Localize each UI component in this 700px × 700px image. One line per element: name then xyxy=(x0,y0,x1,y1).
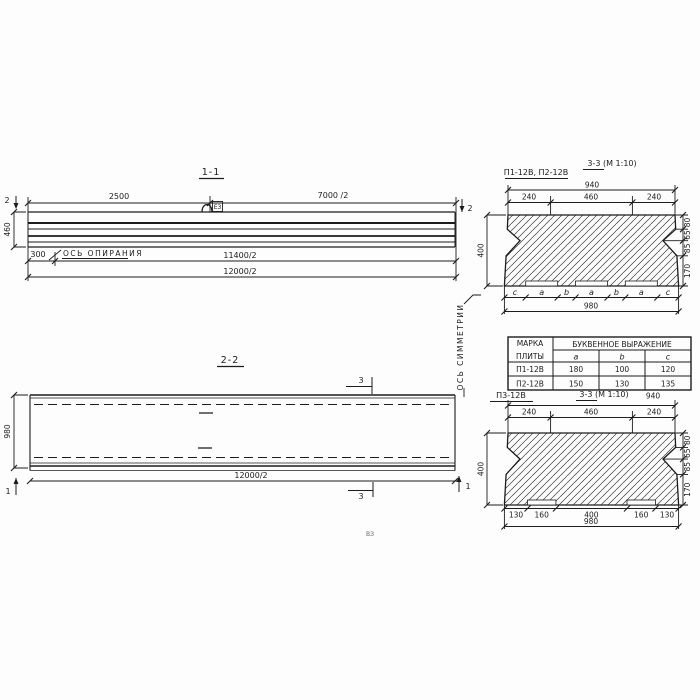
dim-11400: 11400/2 xyxy=(223,251,256,260)
section-marker-2-left: 2 xyxy=(4,196,18,209)
section-2-2-title: 2-2 xyxy=(221,355,240,366)
section-marker-1-right: 1 xyxy=(457,476,471,492)
dim-300: 300 xyxy=(30,250,45,259)
svg-text:130: 130 xyxy=(660,511,675,520)
svg-text:П2-12В: П2-12В xyxy=(516,380,544,389)
svg-text:12000/2: 12000/2 xyxy=(234,471,267,480)
svg-text:П1-12В: П1-12В xyxy=(516,365,544,374)
dim-12000: 12000/2 xyxy=(223,267,256,276)
s33a-label: П1-12В, П2-12В xyxy=(504,168,568,177)
svg-text:65: 65 xyxy=(683,448,692,458)
svg-text:980: 980 xyxy=(3,424,12,439)
section-marker-3-bottom: 3 xyxy=(348,482,373,501)
svg-text:120: 120 xyxy=(661,365,676,374)
svg-text:c: c xyxy=(513,288,518,297)
dim-7000: 7000 /2 xyxy=(318,191,349,200)
section-2-2: 2-2 980 12000/2 3 xyxy=(3,355,471,501)
svg-text:980: 980 xyxy=(584,302,599,311)
dim-2500: 2500 xyxy=(109,192,129,201)
svg-text:80: 80 xyxy=(683,435,692,445)
s33b-body xyxy=(504,433,678,505)
section-3-3-top: П1-12В, П2-12В 3-3 (М 1:10) 940 240 460 … xyxy=(477,159,693,315)
table-row: П2-12В 150 130 135 xyxy=(516,380,675,389)
svg-text:240: 240 xyxy=(522,193,537,202)
svg-text:130: 130 xyxy=(509,511,524,520)
svg-text:b: b xyxy=(564,288,569,297)
svg-text:940: 940 xyxy=(646,392,661,401)
svg-text:160: 160 xyxy=(535,511,550,520)
svg-text:65: 65 xyxy=(683,230,692,240)
drawing-sheet: 1-1 2500 7000 /2 2 2 xyxy=(0,0,700,700)
table-row: П1-12В 180 100 120 xyxy=(516,365,675,374)
beam-side-view xyxy=(28,212,455,247)
svg-text:2: 2 xyxy=(4,196,9,205)
symmetry-axis-label: ОСЬ СИММЕТРИИ xyxy=(456,303,465,390)
slab-plan-view xyxy=(30,395,455,471)
svg-text:240: 240 xyxy=(522,408,537,417)
svg-text:180: 180 xyxy=(569,365,584,374)
svg-text:1: 1 xyxy=(465,482,470,491)
svg-text:80: 80 xyxy=(683,218,692,228)
svg-text:980: 980 xyxy=(584,517,599,526)
table-col-b: b xyxy=(619,353,624,362)
s33a-letter-row: c a b a b a c xyxy=(501,288,681,301)
symmetry-axis-callout: ОСЬ СИММЕТРИИ xyxy=(456,295,481,397)
s33a-dim-400: 400 xyxy=(477,212,507,289)
section-1-1-title: 1-1 xyxy=(202,167,221,178)
svg-text:135: 135 xyxy=(661,380,676,389)
dim-height-980: 980 xyxy=(3,392,28,471)
svg-text:a: a xyxy=(539,288,544,297)
s33b-label: П3-12В xyxy=(496,391,526,400)
svg-text:170: 170 xyxy=(683,482,692,497)
svg-text:a: a xyxy=(639,288,644,297)
svg-text:2: 2 xyxy=(467,204,472,213)
support-axis-label: ОСЬ ОПИРАНИЯ xyxy=(63,249,143,258)
section-marker-2-right: 2 xyxy=(460,199,473,213)
svg-text:460: 460 xyxy=(3,222,12,237)
svg-text:85: 85 xyxy=(683,462,692,472)
section-1-1: 1-1 2500 7000 /2 2 2 xyxy=(3,167,473,281)
svg-text:240: 240 xyxy=(647,408,662,417)
dim-length-12000: 12000/2 xyxy=(27,471,458,484)
svg-text:c: c xyxy=(666,288,671,297)
svg-text:160: 160 xyxy=(634,511,649,520)
svg-text:940: 940 xyxy=(585,181,600,190)
blueprint-drawing: 1-1 2500 7000 /2 2 2 xyxy=(0,0,700,700)
svg-text:3: 3 xyxy=(358,376,363,385)
dim-height-460: 460 xyxy=(3,209,26,250)
section-3-3-bottom: П3-12В 3-3 (М 1:10) 940 240 460 240 400 xyxy=(477,390,693,530)
s33a-title: 3-3 (М 1:10) xyxy=(587,159,636,168)
svg-text:130: 130 xyxy=(615,380,630,389)
svg-text:240: 240 xyxy=(647,193,662,202)
svg-text:100: 100 xyxy=(615,365,630,374)
section-marker-3-top: 3 xyxy=(346,376,372,394)
table-header-col1-line1: МАРКА xyxy=(517,339,544,348)
svg-text:460: 460 xyxy=(584,408,599,417)
svg-text:400: 400 xyxy=(477,462,486,477)
svg-text:460: 460 xyxy=(584,193,599,202)
marks-table: МАРКА ПЛИТЫ БУКВЕННОЕ ВЫРАЖЕНИЕ a b c П1… xyxy=(508,337,691,390)
svg-text:1: 1 xyxy=(5,487,10,496)
s33b-dim-400: 400 xyxy=(477,430,507,508)
s33b-title: 3-3 (М 1:10) xyxy=(579,390,628,399)
svg-text:400: 400 xyxy=(477,243,486,258)
footnote-mark: ВЗ xyxy=(366,531,374,538)
svg-text:3: 3 xyxy=(358,492,363,501)
dim-line-top xyxy=(28,196,456,212)
s33b-dim-240-460-240: 240 460 240 xyxy=(505,408,678,434)
svg-text:150: 150 xyxy=(569,380,584,389)
hook-label: Е3 xyxy=(214,204,222,211)
table-col-c: c xyxy=(666,353,671,362)
svg-text:85: 85 xyxy=(683,243,692,253)
svg-text:b: b xyxy=(614,288,619,297)
table-header-span: БУКВЕННОЕ ВЫРАЖЕНИЕ xyxy=(572,340,672,349)
svg-text:a: a xyxy=(589,288,594,297)
support-axis-callout: ОСЬ ОПИРАНИЯ xyxy=(49,249,143,260)
s33a-body xyxy=(504,215,678,286)
s33a-dim-240-460-240: 240 460 240 xyxy=(505,193,678,216)
table-col-a: a xyxy=(574,353,579,362)
section-marker-1-left: 1 xyxy=(5,478,18,496)
table-header-col1-line2: ПЛИТЫ xyxy=(516,352,544,361)
svg-text:170: 170 xyxy=(683,264,692,279)
